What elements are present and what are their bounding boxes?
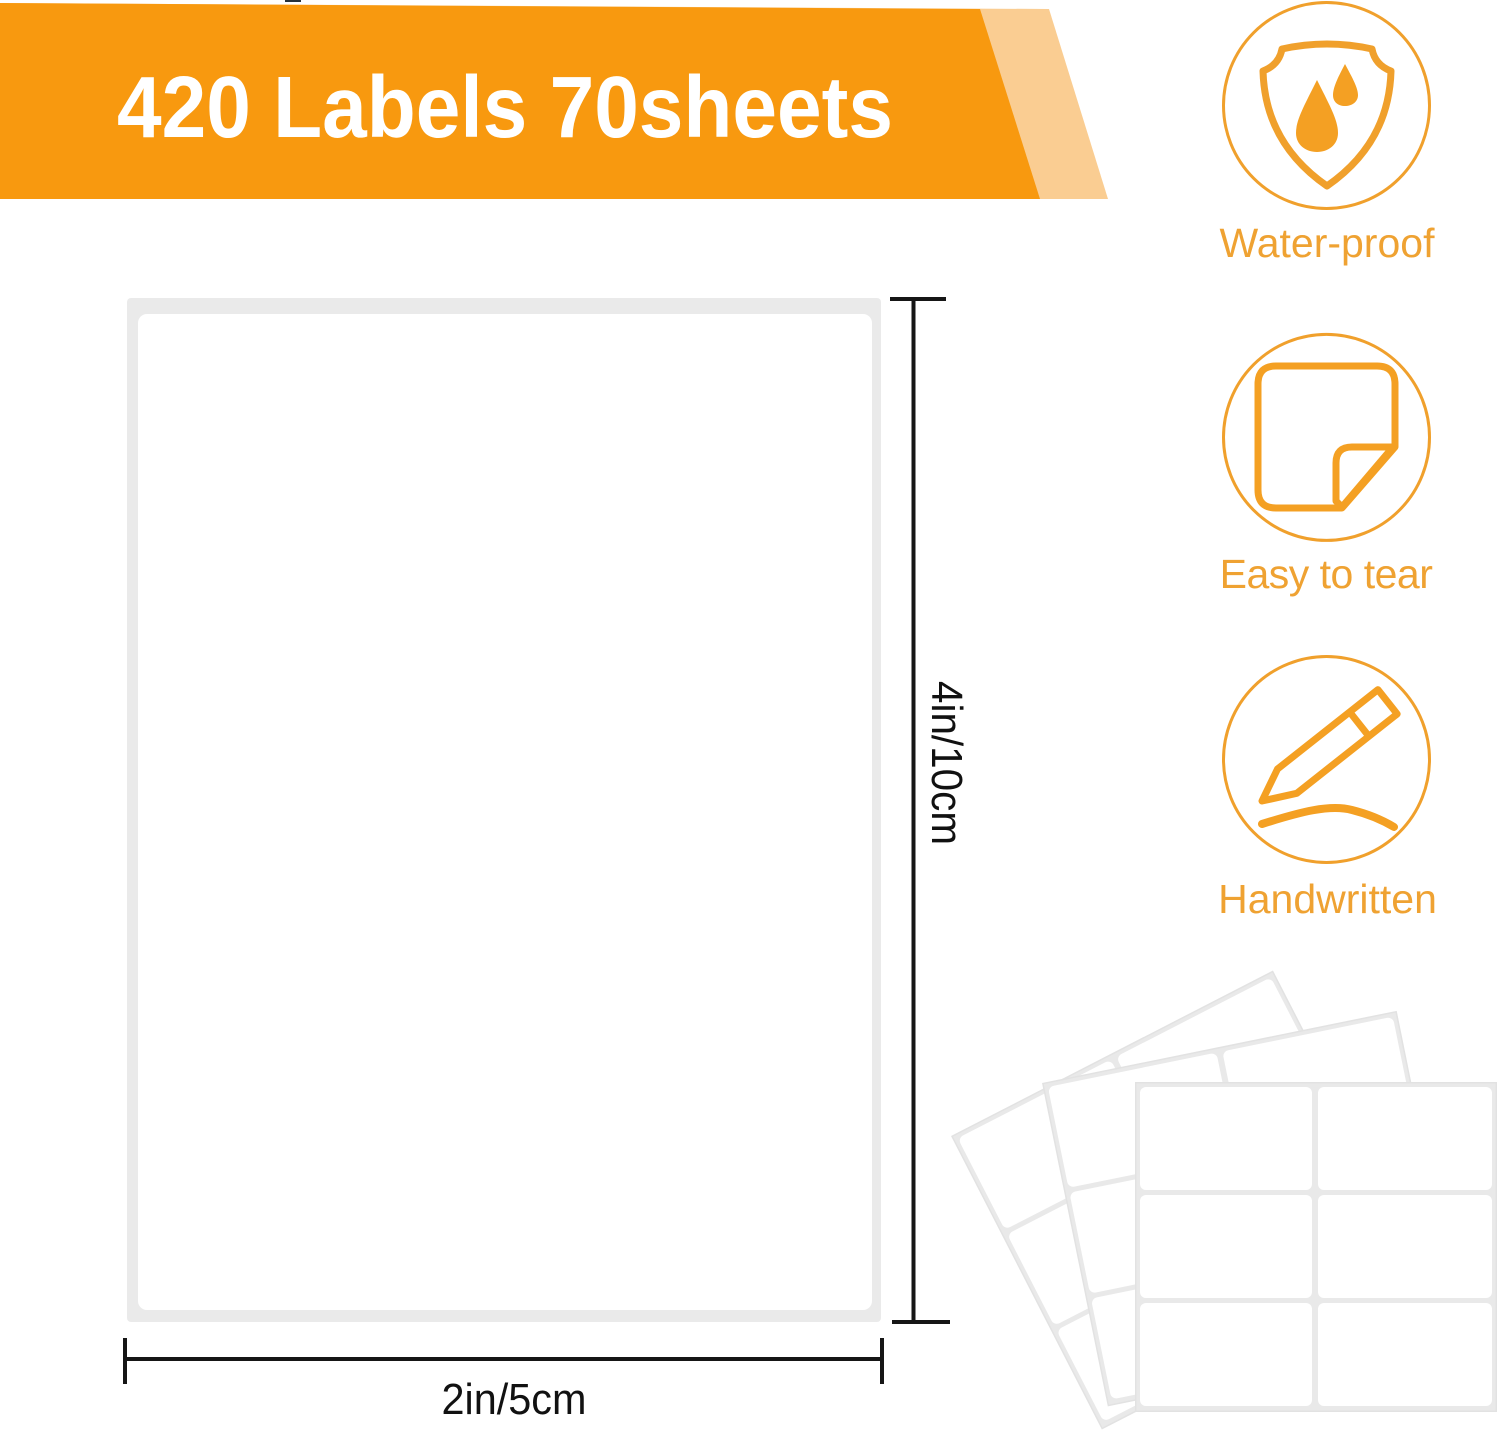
svg-text:2in/5cm: 2in/5cm xyxy=(442,1375,587,1424)
svg-text:Water-proof: Water-proof xyxy=(1220,220,1436,266)
svg-text:Easy to tear: Easy to tear xyxy=(1220,551,1433,597)
svg-text:4in/10cm: 4in/10cm xyxy=(922,681,971,845)
svg-text:Handwritten: Handwritten xyxy=(1218,876,1437,922)
svg-text:420 Labels 70sheets: 420 Labels 70sheets xyxy=(117,59,893,156)
